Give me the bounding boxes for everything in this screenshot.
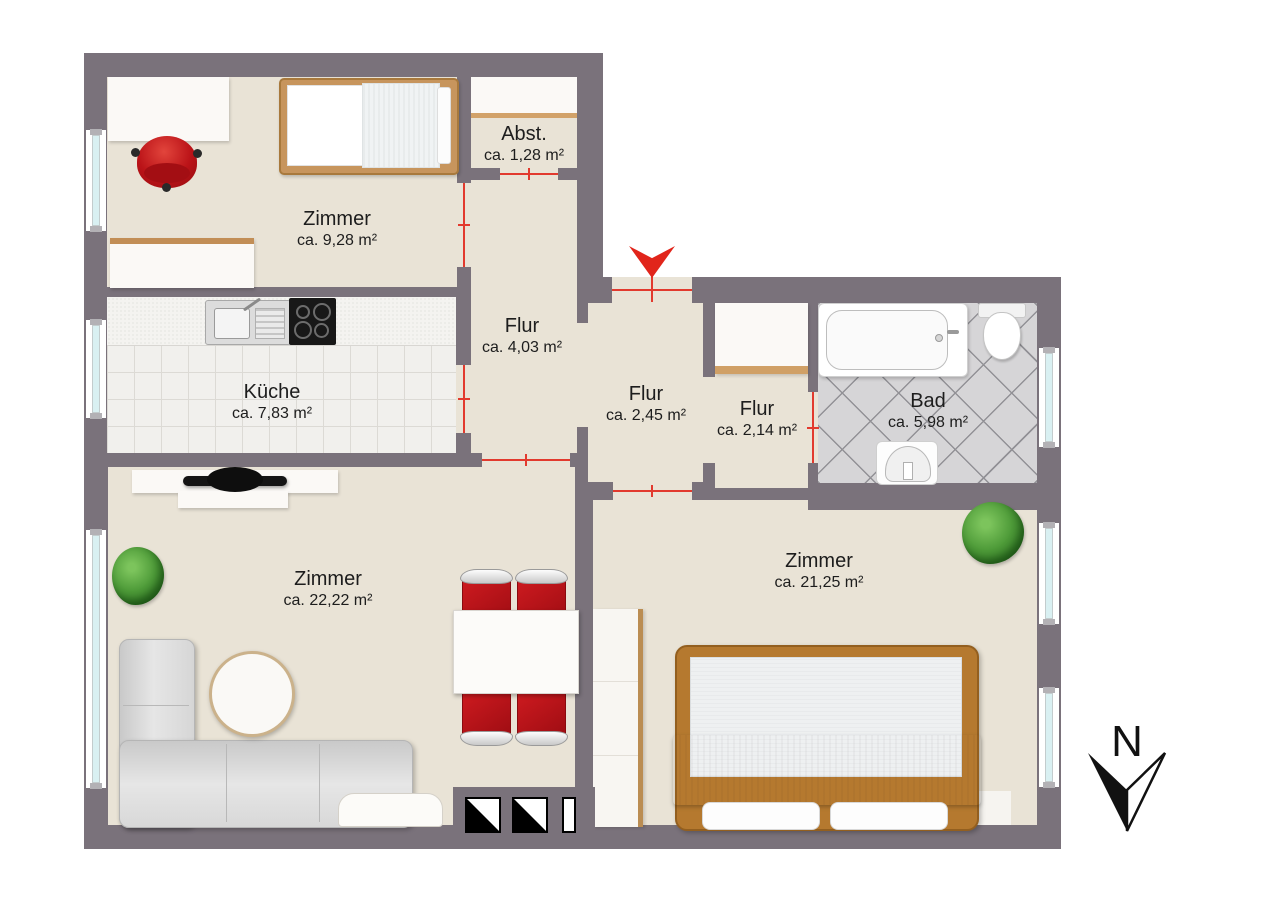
door-tick	[651, 485, 653, 497]
sofa-cushion-line	[319, 744, 320, 822]
room-label-flur-2: Flur ca. 2,45 m²	[606, 383, 686, 425]
room-area: ca. 5,98 m²	[888, 413, 968, 432]
room-area: ca. 22,22 m²	[284, 591, 373, 610]
window-glass	[1045, 353, 1053, 442]
blanket	[673, 735, 981, 805]
window	[1039, 348, 1059, 447]
room-name: Abst.	[484, 123, 564, 146]
window-glass	[92, 535, 100, 783]
toilet	[978, 303, 1024, 359]
room-label-flur-3: Flur ca. 2,14 m²	[717, 398, 797, 440]
chimney-shaft	[465, 797, 501, 833]
bathtub-drain	[935, 334, 943, 342]
dining-chair	[517, 687, 566, 741]
room-name: Zimmer	[297, 208, 377, 231]
room-name: Bad	[888, 390, 968, 413]
sofa-cushion-line	[226, 744, 227, 822]
room-label-flur-1: Flur ca. 4,03 m²	[482, 315, 562, 357]
pillow	[437, 87, 451, 164]
closet-shelf	[471, 77, 577, 118]
washing-machine-knob	[903, 462, 913, 480]
passage-flur2-flur3	[703, 377, 715, 463]
room-area: ca. 4,03 m²	[482, 338, 562, 357]
chair-back	[460, 731, 513, 746]
floor-plan: Zimmer ca. 9,28 m² Abst. ca. 1,28 m² Flu…	[0, 0, 1280, 905]
stove-burner	[313, 303, 331, 321]
room-name: Zimmer	[775, 550, 864, 573]
room-area: ca. 2,14 m²	[717, 421, 797, 440]
door-tick	[528, 168, 530, 180]
room-area: ca. 1,28 m²	[484, 146, 564, 165]
shelf-wood-edge	[110, 238, 254, 244]
chair-back	[515, 731, 568, 746]
bench	[338, 793, 443, 827]
north-label: N	[1111, 717, 1143, 766]
wardrobe-shelf-line	[593, 755, 638, 756]
window	[86, 320, 106, 418]
chair-wheel	[193, 149, 202, 158]
bathtub-inner	[826, 310, 948, 370]
bathtub	[818, 303, 968, 377]
room-label-zimmer-2: Zimmer ca. 22,22 m²	[284, 568, 373, 610]
door-tick	[807, 427, 819, 429]
door-tick	[458, 398, 470, 400]
chimney-shaft-triangle	[514, 799, 546, 831]
ventilation-shaft	[562, 797, 576, 833]
entrance-arrow-icon	[629, 246, 675, 278]
wardrobe-wood-edge	[638, 609, 643, 827]
window	[86, 530, 106, 788]
chair-wheel	[131, 148, 140, 157]
room-name: Flur	[717, 398, 797, 421]
dining-chair	[462, 687, 511, 741]
room-name: Zimmer	[284, 568, 373, 591]
toilet-bowl	[983, 312, 1021, 360]
stove-burner	[296, 305, 310, 319]
desk	[108, 77, 229, 141]
chair-wheel	[162, 183, 171, 192]
shelf	[110, 238, 254, 288]
room-name: Flur	[606, 383, 686, 406]
bathtub-faucet	[947, 330, 959, 334]
room-label-bad: Bad ca. 5,98 m²	[888, 390, 968, 432]
office-chair-backrest	[144, 163, 190, 183]
window-glass	[92, 135, 100, 226]
single-bed	[279, 78, 459, 175]
room-label-abst: Abst. ca. 1,28 m²	[484, 123, 564, 165]
window-glass	[1045, 528, 1053, 619]
room-label-zimmer-1: Zimmer ca. 9,28 m²	[297, 208, 377, 250]
kitchen-sink	[205, 300, 291, 345]
entrance-door-stem	[651, 276, 653, 302]
chair-back	[515, 569, 568, 584]
stove-burner	[294, 321, 312, 339]
door-tick	[458, 224, 470, 226]
window	[1039, 688, 1059, 787]
pillow	[702, 802, 820, 830]
coffee-table	[209, 651, 295, 737]
room-name: Küche	[232, 381, 312, 404]
duvet	[362, 83, 440, 168]
window	[86, 130, 106, 231]
stove-burner	[314, 323, 329, 338]
north-arrow-icon: N	[1082, 710, 1174, 840]
wardrobe	[593, 609, 643, 827]
stove	[289, 298, 336, 345]
room-area: ca. 9,28 m²	[297, 231, 377, 250]
chimney-shaft	[512, 797, 548, 833]
room-label-zimmer-3: Zimmer ca. 21,25 m²	[775, 550, 864, 592]
tv-shelf	[178, 491, 288, 508]
sofa-cushion-line	[123, 705, 189, 706]
dining-table	[453, 610, 579, 694]
pillow	[830, 802, 948, 830]
double-bed	[675, 645, 979, 831]
room-area: ca. 7,83 m²	[232, 404, 312, 423]
chimney-shaft-triangle	[467, 799, 499, 831]
passage-flur1-flur2	[577, 323, 588, 427]
window	[1039, 523, 1059, 624]
window-glass	[92, 325, 100, 413]
sink-drainer	[255, 308, 285, 339]
room-area: ca. 2,45 m²	[606, 406, 686, 425]
tv-screen	[207, 467, 263, 492]
hallway-wardrobe	[715, 303, 808, 374]
room-label-kueche: Küche ca. 7,83 m²	[232, 381, 312, 423]
wardrobe-shelf-line	[593, 681, 638, 682]
window-glass	[1045, 693, 1053, 782]
hallway-wardrobe-wood-edge	[715, 366, 808, 374]
room-area: ca. 21,25 m²	[775, 573, 864, 592]
door-tick	[525, 454, 527, 466]
closet-shelf-wood-edge	[471, 113, 577, 118]
room-name: Flur	[482, 315, 562, 338]
washing-machine	[876, 441, 938, 485]
office-chair	[137, 136, 197, 188]
chair-back	[460, 569, 513, 584]
sink-basin	[214, 308, 250, 339]
